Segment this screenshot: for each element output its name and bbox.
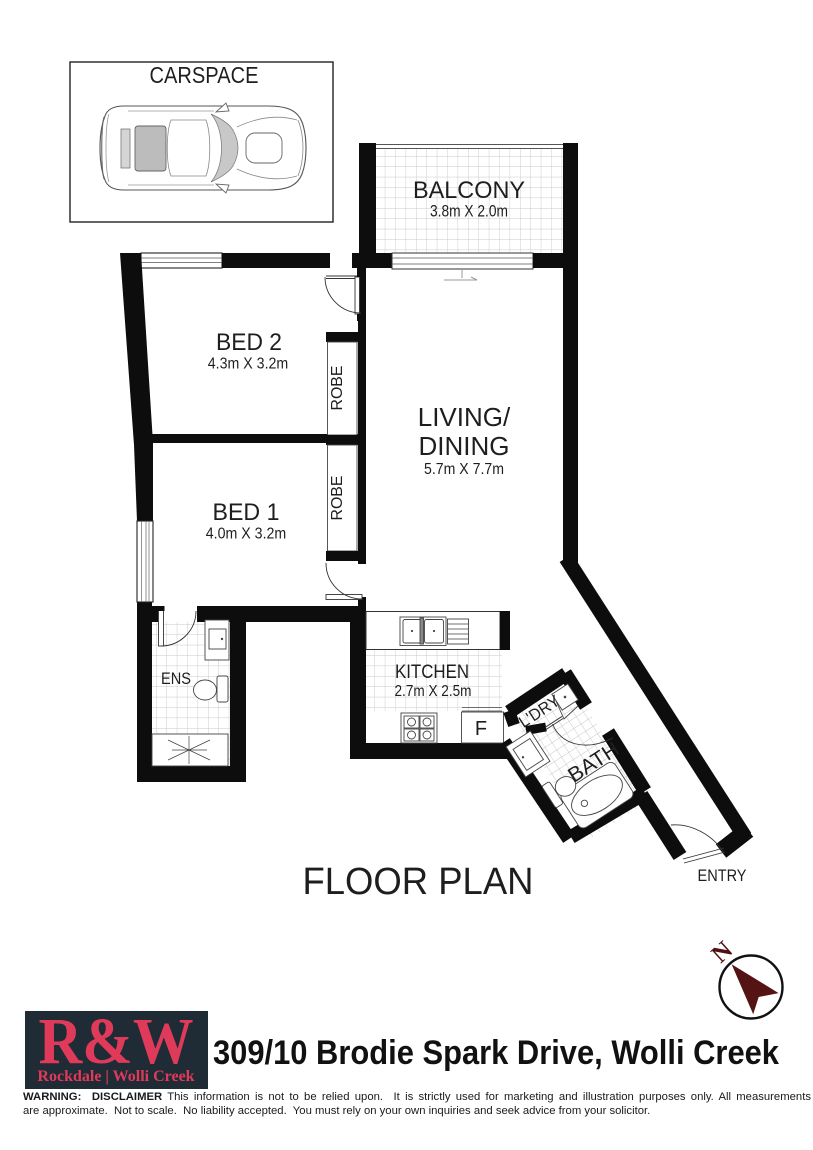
svg-text:309/10 Brodie Spark Drive, Wol: 309/10 Brodie Spark Drive, Wolli Creek <box>213 1034 779 1072</box>
svg-text:F: F <box>475 718 487 740</box>
svg-text:4.0m X 3.2m: 4.0m X 3.2m <box>206 526 287 543</box>
svg-text:BED 1: BED 1 <box>213 499 280 526</box>
svg-text:2.7m X 2.5m: 2.7m X 2.5m <box>395 683 472 700</box>
svg-text:CARSPACE: CARSPACE <box>150 62 259 88</box>
svg-text:ROBE: ROBE <box>329 476 346 521</box>
svg-text:BALCONY: BALCONY <box>413 177 525 204</box>
svg-text:ENS: ENS <box>161 670 191 688</box>
svg-text:LIVING/: LIVING/ <box>418 402 511 432</box>
svg-text:KITCHEN: KITCHEN <box>395 661 469 683</box>
svg-text:ROBE: ROBE <box>329 366 346 411</box>
svg-text:DINING: DINING <box>419 431 510 461</box>
svg-text:ENTRY: ENTRY <box>698 867 747 885</box>
svg-text:BED 2: BED 2 <box>216 329 282 356</box>
svg-text:Rockdale | Wolli Creek: Rockdale | Wolli Creek <box>37 1068 194 1085</box>
svg-text:3.8m X 2.0m: 3.8m X 2.0m <box>430 203 508 221</box>
svg-text:4.3m X 3.2m: 4.3m X 3.2m <box>208 356 289 373</box>
svg-text:FLOOR PLAN: FLOOR PLAN <box>303 861 534 903</box>
svg-text:5.7m X 7.7m: 5.7m X 7.7m <box>424 461 504 478</box>
